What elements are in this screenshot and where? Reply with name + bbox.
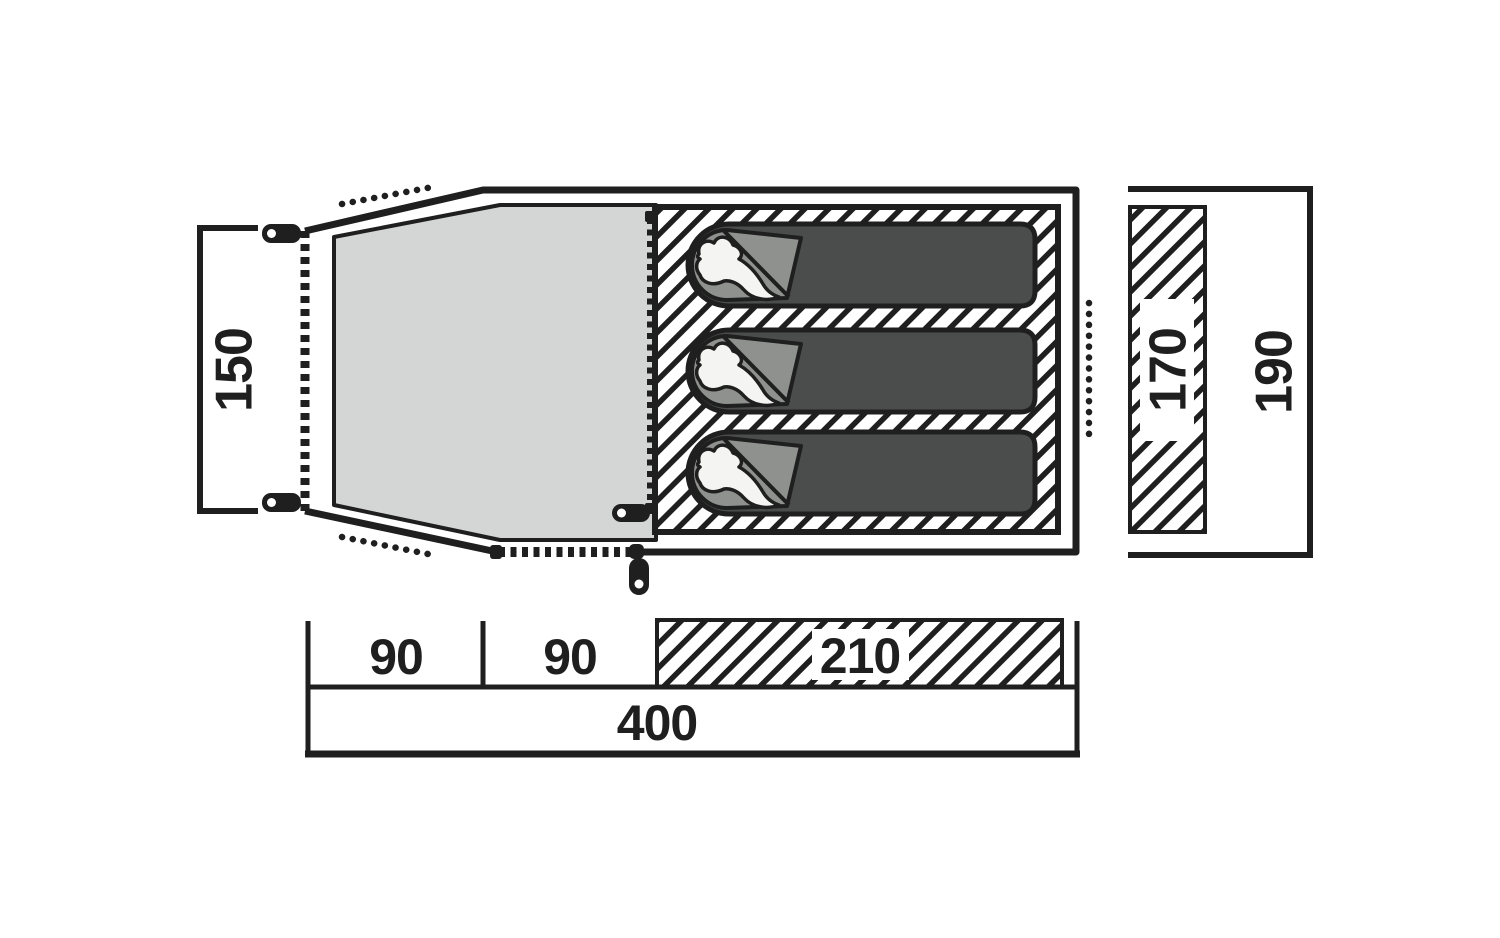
outer-zipper-pull xyxy=(629,558,649,595)
sleeping-bag-2 xyxy=(688,330,1035,412)
dim-label-170: 170 xyxy=(1140,328,1198,412)
dim-label-90-a: 90 xyxy=(369,629,423,685)
cabin-zipper-pull xyxy=(612,504,650,522)
dim-label-90-b: 90 xyxy=(543,629,597,685)
zipper-pull-icon xyxy=(629,558,649,595)
sleeping-bag-1 xyxy=(688,224,1035,306)
dim-label-150: 150 xyxy=(206,328,264,412)
dim-label-190: 190 xyxy=(1246,330,1304,414)
floorplan-svg: 150 170 190 90 90 210 400 xyxy=(0,0,1500,938)
porch-groundsheet xyxy=(334,205,656,540)
peg-top-left xyxy=(262,224,301,243)
dim-label-400: 400 xyxy=(617,695,697,751)
sleeping-bag-3 xyxy=(688,432,1035,514)
dim-label-210: 210 xyxy=(820,628,900,684)
zipper-stop xyxy=(645,211,656,222)
zipper-stop xyxy=(629,544,644,559)
zipper-stop xyxy=(490,545,502,559)
peg-bottom-left xyxy=(262,493,301,512)
sleeping-cabin xyxy=(645,207,1058,532)
tent-floorplan-diagram: 150 170 190 90 90 210 400 xyxy=(0,0,1500,938)
